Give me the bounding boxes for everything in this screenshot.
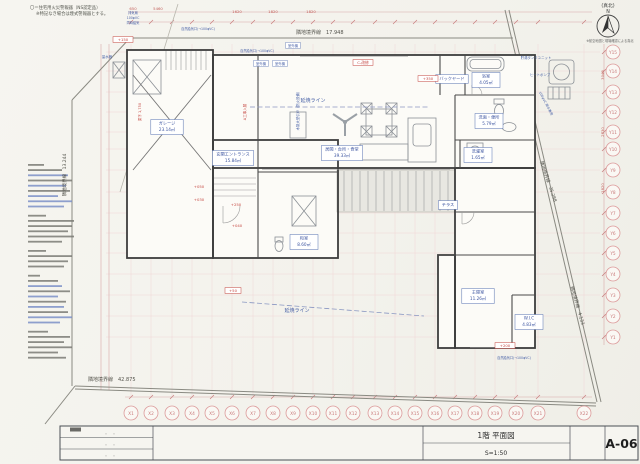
fire-note-line2: ※特記なき場合は煙式警報器とする。 [36,10,108,17]
spec-note-line [28,346,72,348]
spec-note-line [28,341,64,343]
compass-needle-icon [602,16,608,33]
fire-alarm-note: 〇＝住宅用火災警報器（NS認定品） ※特記なき場合は煙式警報器とする。 [30,4,108,17]
dimension-text: 5460 [153,6,163,11]
room-label-garage: ガレージ [159,120,176,127]
grid-label-x: X19 [491,411,500,417]
level-marker: +040 [232,223,243,228]
room-label-wic: 4.83㎡ [522,321,536,327]
boundary-label-west: 隣地境界線 13.244 [61,153,68,196]
room-label-entrance: 15.84㎡ [225,157,242,163]
rotated-note-red: A工事入替 [242,103,247,120]
spec-note-line [28,241,62,243]
drawing-sheet: X1X2X3X4X5X6X7X8X9X10X11X12X13X14X15X16X… [0,0,640,464]
spec-note-line [28,220,74,222]
drawing-title: 1階 平面図 [477,430,514,440]
water-meter-cross [113,62,125,78]
spec-note-line [28,336,70,338]
spec-note-line [28,164,44,166]
grid-label-x: X9 [290,411,296,417]
grid-label-x: X16 [431,411,440,417]
revision-row-dots: ・ ・ [104,432,116,437]
grid-label-x: X6 [229,411,235,417]
grid-label-x: X20 [512,411,521,417]
grid-label-x: X12 [349,411,358,417]
grid-label-y: Y3 [609,293,616,299]
grid-label-y: Y4 [609,272,616,278]
grid-label-y: Y8 [609,190,616,196]
grid-label-x: X15 [411,411,420,417]
annotation-kyuki1: 自然給気口(→100φVC) [181,26,215,31]
grid-label-x: X10 [309,411,318,417]
annotation-ensho1: 延焼ライン [300,97,325,104]
grid-label-y: Y12 [608,110,617,116]
room-label-lavatory: 洗面・便所 [479,114,500,121]
level-marker: +050 [194,184,205,189]
grid-label-y: Y5 [609,251,616,257]
grid-label-y: Y14 [608,69,617,75]
room-label-entrance: 玄関エントランス [216,151,249,158]
room-label-bedroom: 11.26㎡ [470,295,487,301]
dimension-text: 1820 [268,9,278,14]
ceiling-fan-hub [343,120,347,124]
dimension-text: 1820 [600,183,605,193]
grid-label-y: Y7 [609,211,616,217]
boundary-corner-line [45,386,75,424]
grid-label-x: X1 [128,411,134,417]
spec-note-line [28,169,62,171]
grid-label-x: X2 [148,411,154,417]
floor-plan-svg: X1X2X3X4X5X6X7X8X9X10X11X12X13X14X15X16X… [0,0,640,464]
grid-label-y: Y6 [609,231,616,237]
spec-note-line [28,255,72,257]
room-label-bedroom: 主寝室 [472,289,485,295]
room-label-ldk: 居間・台所・食堂 [325,146,359,153]
spec-note-line [28,357,66,359]
north-n-label: N [606,9,610,15]
grid-label-x: X13 [371,411,380,417]
level-marker: C-改修 [357,60,369,65]
spec-note-line [28,285,62,287]
spec-note-line [28,206,64,208]
spec-note-line [28,290,70,292]
dimension-text: 1620 [232,9,242,14]
grid-label-y: Y11 [608,130,617,136]
annotation-wood_door: 木製大型引戸（防火設備） [295,90,300,131]
annotation-kyuki2: 自然給気口(→100φVC) [240,48,274,53]
grid-label-y: Y2 [609,314,616,320]
room-label-garage: 23.14㎡ [159,126,176,132]
rotated-note-red: 梁下 1,750 [137,103,142,121]
spec-note-line [28,230,68,232]
grid-label-x: X14 [391,411,400,417]
spec-note-line [28,352,58,354]
grid-label-x: X17 [451,411,460,417]
dimension-text: 1820 [306,9,316,14]
boundary-label-south: 隣地境界線 42.875 [88,376,136,383]
spec-note-line [28,185,66,187]
room-label-laundry: 洗濯室 [472,148,485,155]
annotation-exhaust1: 排気扇 [128,10,138,15]
room-label-washitsu: 8.60㎡ [297,241,311,247]
room-label-bath: 浴室 [482,73,490,80]
compass-needle-outline [608,16,614,33]
grid-label-x: X4 [189,411,195,417]
dimension-text: 3048 [600,70,605,80]
grid-label-y: Y1 [609,335,616,341]
annotation-outdoor3: 室外機 [288,43,299,48]
spec-note-line [28,296,58,298]
spec-note-line [28,215,46,217]
title-block: ・ ・ ・ ・ ・ ・ 1階 平面図 S=1:50 A-06 [60,426,638,460]
spec-note-line [28,225,72,227]
level-marker: +150 [118,37,129,42]
hot-water-tank-circle [554,64,570,80]
terrace-deck [337,170,455,212]
spec-note-line [28,174,68,176]
hot-water-tank-unit [549,60,574,84]
level-marker: +250 [231,202,242,207]
dimension-text: 2730 [600,127,605,137]
annotation-outdoor2: 室外機 [275,61,286,66]
grid-label-y: Y9 [609,168,616,174]
spec-note-line [28,322,60,324]
annotation-kyuki3: 自然給気口(→100φVC) [497,355,531,360]
spec-note-line [28,301,66,303]
grid-label-x: X7 [250,411,256,417]
spec-note-line [28,306,64,308]
boundary-label-north: 隣地境界線 17.948 [296,29,344,36]
revision-row-dots: ・ ・ [104,443,116,448]
spec-note-line [28,266,64,268]
spec-note-line [28,280,58,282]
room-label-washitsu: 和室 [300,235,308,242]
annotation-exhaust2: 100φVC [127,16,140,20]
drawing-number: A-06 [605,436,638,451]
spec-note-line [28,275,40,277]
level-marker: +200 [500,343,511,348]
spec-note-line [28,250,46,252]
grid-label-y: Y15 [608,50,617,56]
fire-note-line1: 〇＝住宅用火災警報器（NS認定品） [30,4,100,11]
true-north-label: (真北) [601,2,614,9]
spec-note-line [28,236,74,238]
room-label-bath: 4.05㎡ [479,79,493,85]
grid-label-x: X8 [270,411,276,417]
annotation-outdoor1: 室外機 [256,61,267,66]
grid-label-x: X5 [209,411,215,417]
annotation-meter: 量水器 [102,54,113,59]
room-label-ldk: 39.33㎡ [334,152,351,158]
annotation-exhaust3: 同時給気 [127,20,141,25]
grid-label-x: X21 [534,411,543,417]
room-label-wic: W.I.C [524,316,535,321]
annotation-rain: 100φVC 雨水兼用 [538,90,555,116]
spec-note-line [28,316,72,318]
level-marker: +50 [229,288,238,293]
grid-label-x: X11 [329,411,338,417]
grid-label-x: X3 [169,411,175,417]
boundary-line-south [75,386,596,406]
spec-note-line [28,311,68,313]
compass: (真北) N ※航空地図と現場確認による真北 [586,2,634,43]
annotation-heatpump: ヒートポンプ [530,72,551,77]
spec-note-line [28,195,58,197]
heat-pump-fins [553,87,565,99]
annotation-tank: 貯湯タンクユニット [521,55,552,60]
grid-label-x: X18 [471,411,480,417]
spec-note-line [28,260,68,262]
spec-note-line [28,331,48,333]
drawing-scale: S=1:50 [485,450,507,457]
grid-label-y: Y13 [608,90,617,96]
spec-note-line [28,200,72,202]
grid-label-x: X22 [580,411,589,417]
revision-stamp [70,428,81,432]
annotation-ensho2: 延焼ライン [284,307,309,314]
room-label-lavatory: 5.79㎡ [482,120,496,126]
room-label-laundry: 1.65㎡ [471,154,485,160]
revision-row-dots: ・ ・ [104,454,116,459]
level-marker: +350 [423,76,434,81]
compass-note: ※航空地図と現場確認による真北 [586,38,634,43]
level-marker: +030 [194,197,205,202]
grid-label-y: Y10 [608,147,617,153]
